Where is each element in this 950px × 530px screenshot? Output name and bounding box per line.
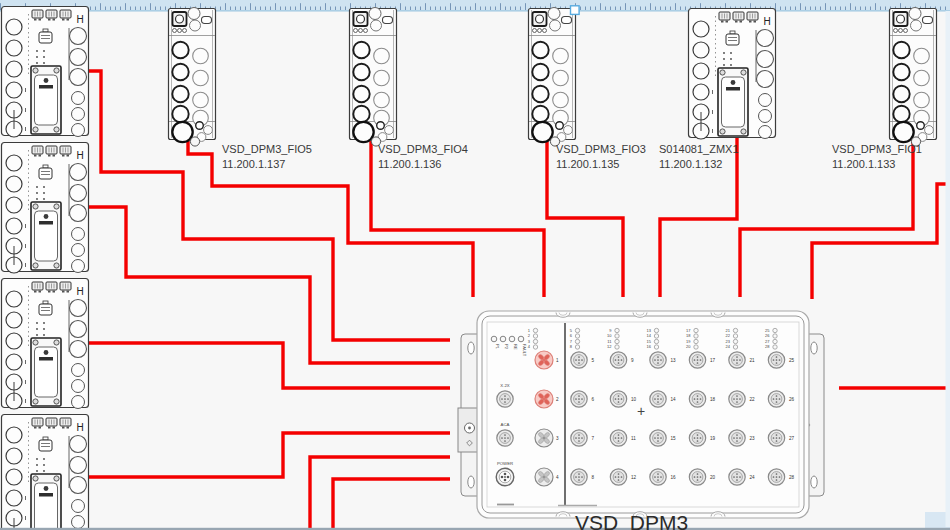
pin-dot [739, 359, 741, 361]
device-ip: 11.200.1.133 [832, 157, 922, 172]
led-dot [615, 328, 619, 332]
pin-dot [578, 476, 580, 478]
pin-dot [660, 359, 662, 361]
port-number: 19 [710, 436, 716, 441]
connector-label: X.2X [500, 383, 509, 388]
status-led-label: FAULT [522, 344, 527, 357]
pin-dot [654, 476, 656, 478]
main-port-circle [893, 122, 913, 142]
pin-dot [773, 476, 775, 478]
port-circle [204, 126, 213, 135]
module-fio4[interactable] [350, 8, 397, 147]
port-circle [6, 312, 22, 328]
connector-pin [749, 21, 752, 23]
status-led [491, 336, 497, 342]
dot [43, 328, 45, 330]
connector-pin [62, 291, 65, 293]
dot [43, 470, 45, 472]
port-number: 9 [631, 358, 634, 363]
port-circle [6, 448, 22, 464]
vertical-scrollbar[interactable] [946, 11, 950, 527]
port-circle [893, 64, 909, 80]
screw-icon [54, 68, 59, 73]
h-marker: H [76, 14, 83, 25]
pin-dot [776, 398, 778, 400]
pin-dot [501, 476, 504, 479]
pin-dot [578, 437, 580, 439]
screw-icon [33, 127, 38, 132]
port-circle [893, 42, 909, 58]
port-circle [693, 63, 709, 79]
pin-dot [618, 434, 620, 436]
connector-pin [34, 155, 37, 157]
led-number: 16 [647, 344, 652, 349]
led-dot [575, 339, 579, 343]
slot [562, 17, 572, 24]
port-number: 5 [592, 358, 595, 363]
pin-dot [504, 398, 506, 400]
led-number: 17 [686, 328, 691, 333]
device-name: VSD_DPM3_FIO3 [556, 142, 646, 157]
led-dot [654, 328, 658, 332]
connector-pin [67, 427, 70, 429]
pin-dot [501, 437, 503, 439]
pin-dot [736, 395, 738, 397]
port-circle [70, 477, 87, 494]
led-number: 26 [765, 333, 770, 338]
led-dot [533, 334, 537, 338]
pin-dot [618, 398, 620, 400]
device-name: S014081_ZMX1 [659, 142, 739, 157]
module-left-zmx-2[interactable]: H [2, 143, 89, 274]
led-dot [615, 339, 619, 343]
port-number: 23 [750, 436, 756, 441]
port-circle [172, 64, 188, 80]
pin-dot [657, 395, 659, 397]
port-circle [893, 86, 909, 102]
port-circle [377, 122, 385, 130]
pin-dot [615, 476, 617, 478]
port-circle [909, 8, 921, 20]
port-circle [556, 122, 564, 130]
module-zmx1[interactable]: H [689, 9, 776, 140]
pin-dot [618, 437, 620, 439]
brand-logo-icon [44, 214, 49, 219]
dot [43, 198, 45, 200]
pin-dot [504, 476, 506, 478]
pin-dot [657, 479, 659, 481]
port-number: 21 [750, 358, 756, 363]
screw-icon [33, 204, 38, 209]
port-circle [353, 86, 369, 102]
status-led-label: P2 [504, 344, 509, 350]
main-port-circle [532, 122, 552, 142]
port-circle [374, 48, 390, 64]
led-number: 21 [726, 328, 731, 333]
led-dot [694, 334, 698, 338]
port-circle [70, 69, 87, 86]
port-circle [532, 106, 548, 122]
connector-pin [53, 155, 56, 157]
pin-dot [739, 398, 741, 400]
port-circle [72, 380, 85, 393]
led-dot [615, 345, 619, 349]
port-number: 13 [671, 358, 677, 363]
module-fio3[interactable] [529, 8, 576, 147]
device-icon [726, 34, 739, 45]
pin-dot [543, 398, 545, 400]
port-circle [759, 126, 772, 139]
connection-offscreen-bottom-1[interactable] [310, 457, 450, 530]
module-fio1[interactable] [890, 8, 937, 147]
pin-dot [578, 398, 580, 400]
device-label-zmx1[interactable]: S014081_ZMX1 11.200.1.132 [659, 142, 739, 171]
port-circle [72, 244, 85, 257]
connector-pin [34, 19, 37, 21]
connector-pin [754, 21, 757, 23]
port-circle [6, 19, 22, 35]
dot [43, 56, 45, 58]
port-circle [6, 82, 22, 98]
pin-dot [615, 437, 617, 439]
port-circle [564, 126, 573, 135]
pin-dot [657, 356, 659, 358]
pin-dot [736, 437, 738, 439]
pin-dot [773, 359, 775, 361]
selection-handle[interactable] [571, 6, 580, 15]
port-circle [914, 48, 930, 64]
port-circle [190, 20, 201, 31]
led-dot [773, 328, 777, 332]
dot [43, 192, 45, 194]
pin-dot [581, 359, 583, 361]
bracket-hole [468, 342, 474, 354]
port-number: 7 [592, 436, 595, 441]
pin-dot [779, 398, 781, 400]
pin-dot [657, 398, 659, 400]
port-circle [6, 333, 22, 349]
led-number: 22 [726, 333, 731, 338]
pin-dot [618, 362, 620, 364]
pin-dot [773, 398, 775, 400]
pin-dot [621, 359, 623, 361]
pin-dot [733, 398, 735, 400]
status-led-label: P1 [495, 344, 500, 350]
port-circle [172, 86, 188, 102]
port-circle [911, 20, 922, 31]
led-dot [694, 328, 698, 332]
dot [36, 458, 38, 460]
dot [36, 198, 38, 200]
module-left-zmx-4[interactable]: H [2, 415, 89, 530]
device-label-fio3[interactable]: VSD_DPM3_FIO3 11.200.1.135 [556, 142, 646, 171]
screw-icon [54, 127, 59, 132]
port-circle [532, 86, 548, 102]
pin-dot [733, 359, 735, 361]
device-ip: 11.200.1.132 [659, 157, 739, 172]
connection-offscreen-bottom-2[interactable] [333, 479, 450, 530]
led-dot [543, 29, 547, 33]
device-label-fio1[interactable]: VSD_DPM3_FIO1 11.200.1.133 [832, 142, 922, 171]
port-circle [550, 20, 561, 31]
port-circle [925, 126, 934, 135]
port-circle [6, 155, 22, 171]
port-circle [70, 457, 87, 474]
bracket-hole [811, 342, 817, 354]
pin-dot [657, 473, 659, 475]
dot [36, 50, 38, 52]
device-name: VSD_DPM3_FIO4 [378, 142, 468, 157]
screw-icon [720, 129, 725, 134]
pin-dot [697, 401, 699, 403]
port-circle [6, 469, 22, 485]
screw-icon [468, 427, 471, 430]
pin-dot [578, 440, 580, 442]
connector-pin [62, 155, 65, 157]
port-circle [72, 124, 85, 137]
connector-pin [48, 427, 51, 429]
pin-dot [697, 437, 699, 439]
pin-dot [657, 440, 659, 442]
port-circle [72, 364, 85, 377]
led-dot [733, 339, 737, 343]
led-dot [773, 339, 777, 343]
pin-dot [736, 476, 738, 478]
port-number: 24 [750, 475, 756, 480]
led-dot [654, 339, 658, 343]
port-number: 11 [631, 436, 636, 441]
connection-offscreen-right-1[interactable] [812, 184, 950, 299]
led-dot [354, 29, 358, 33]
led-number: 24 [726, 344, 731, 349]
dot [43, 62, 45, 64]
port-circle [893, 106, 909, 122]
pin-dot [657, 434, 659, 436]
port-circle [914, 70, 930, 86]
led-dot [773, 334, 777, 338]
pin-dot [504, 395, 506, 397]
pin-dot [697, 359, 699, 361]
pin-dot [581, 398, 583, 400]
bracket-hole [468, 476, 474, 488]
brand-logo-icon [44, 350, 49, 355]
port-number: 8 [592, 475, 595, 480]
led-number: 18 [686, 333, 691, 338]
pin-dot [660, 398, 662, 400]
pin-dot [694, 437, 696, 439]
pin-dot [736, 473, 738, 475]
pin-dot [621, 437, 623, 439]
pin-dot [621, 476, 623, 478]
pin-dot [504, 479, 507, 482]
pin-dot [697, 473, 699, 475]
port-number: 14 [671, 397, 677, 402]
ruler-band [0, 0, 950, 11]
port-circle [193, 92, 209, 108]
port-circle [353, 42, 369, 58]
port-circle [757, 51, 774, 68]
device-icon [39, 32, 52, 43]
port-number: 6 [592, 397, 595, 402]
pin-dot [543, 359, 545, 361]
pin-dot [736, 440, 738, 442]
pin-dot [779, 359, 781, 361]
pin-dot [776, 362, 778, 364]
port-circle [532, 64, 548, 80]
module-left-zmx-3[interactable]: H [2, 279, 89, 410]
connector-pin [62, 427, 65, 429]
connector-pin [34, 427, 37, 429]
pin-dot [654, 398, 656, 400]
port-circle [6, 197, 22, 213]
led-dot [733, 334, 737, 338]
pin-dot [504, 440, 506, 442]
screw-icon [741, 70, 746, 75]
pin-dot [736, 401, 738, 403]
led-dot [173, 29, 177, 33]
pin-dot [733, 437, 735, 439]
screw-icon [33, 263, 38, 268]
led-dot [183, 29, 187, 33]
dot [36, 192, 38, 194]
port-circle [693, 21, 709, 37]
port-number: 20 [710, 475, 716, 480]
device-label-fio5[interactable]: VSD_DPM3_FIO5 11.200.1.137 [222, 142, 312, 171]
brand-logo-icon [731, 80, 736, 85]
led-dot [894, 29, 898, 33]
led-number: 23 [726, 339, 731, 344]
dot [43, 334, 45, 336]
port-circle [548, 8, 560, 20]
status-led-label: RE [513, 344, 518, 350]
port-number: 10 [631, 397, 637, 402]
hub-device-label[interactable]: VSD_DPM3 [575, 511, 688, 530]
screw-icon [54, 399, 59, 404]
pin-dot [700, 359, 702, 361]
pin-dot [618, 359, 620, 361]
main-port-circle [172, 122, 192, 142]
port-number: 4 [556, 475, 559, 480]
port-circle [374, 70, 390, 86]
port-number: 18 [710, 397, 716, 402]
pin-dot [779, 437, 781, 439]
pin-dot [697, 362, 699, 364]
port-circle [353, 64, 369, 80]
connector-pin [53, 291, 56, 293]
dot [36, 186, 38, 188]
pin-dot [694, 359, 696, 361]
connector-pin [726, 21, 729, 23]
pin-dot [618, 401, 620, 403]
block-label-bar [39, 357, 53, 361]
port-circle [917, 122, 925, 130]
dot [36, 322, 38, 324]
pin-dot [776, 476, 778, 478]
device-label-fio4[interactable]: VSD_DPM3_FIO4 11.200.1.136 [378, 142, 468, 171]
led-dot [733, 345, 737, 349]
bracket-hole [811, 476, 817, 488]
pin-dot [733, 476, 735, 478]
port-circle [6, 40, 22, 56]
connector-pin [48, 291, 51, 293]
led-dot [533, 345, 537, 349]
connector-pin [48, 19, 51, 21]
dot [730, 58, 732, 60]
pin-dot [700, 437, 702, 439]
led-number: 15 [647, 339, 652, 344]
connector-pin [67, 291, 70, 293]
dot [43, 186, 45, 188]
connector-pin [721, 21, 724, 23]
connection-left-zmx-4[interactable] [88, 433, 450, 477]
pin-dot [697, 395, 699, 397]
center-cross-mark: + [637, 403, 645, 419]
pin-dot [575, 359, 577, 361]
pin-dot [543, 437, 545, 439]
port-circle [72, 500, 85, 513]
pin-dot [776, 395, 778, 397]
pin-dot [694, 398, 696, 400]
port-number: 25 [789, 358, 795, 363]
pin-dot [615, 398, 617, 400]
connector-pin [39, 291, 42, 293]
module-left-zmx-1[interactable]: H [2, 7, 89, 138]
pin-dot [657, 437, 659, 439]
port-circle [6, 354, 22, 370]
pin-dot [504, 437, 506, 439]
block-label-bar [39, 493, 53, 497]
pin-dot [575, 476, 577, 478]
device-icon [39, 304, 52, 315]
connector-pin [53, 19, 56, 21]
dot [723, 52, 725, 54]
port-number: 26 [789, 397, 795, 402]
connector-pin [735, 21, 738, 23]
module-fio5[interactable] [169, 8, 216, 147]
led-dot [575, 328, 579, 332]
port-number: 2 [556, 397, 559, 402]
led-dot [359, 29, 363, 33]
device-name: VSD_DPM3_FIO5 [222, 142, 312, 157]
page-boundary-line [0, 10, 950, 11]
module-hub[interactable]: P1P2REFAULT12345678910111213141516171819… [458, 311, 824, 518]
pin-dot [776, 356, 778, 358]
connector-pin [740, 21, 743, 23]
port-circle [172, 42, 188, 58]
device-ip: 11.200.1.135 [556, 157, 646, 172]
port-circle [757, 71, 774, 88]
pin-dot [660, 437, 662, 439]
pin-dot [657, 401, 659, 403]
led-number: 20 [686, 344, 691, 349]
pin-dot [779, 476, 781, 478]
port-circle [353, 106, 369, 122]
pin-dot [504, 401, 506, 403]
port-circle [72, 92, 85, 105]
port-circle [70, 321, 87, 338]
led-dot [904, 29, 908, 33]
led-dot [538, 29, 542, 33]
port-circle [172, 106, 188, 122]
diagram-canvas: HHHHHP1P2REFAULT123456789101112131415161… [0, 0, 950, 530]
port-number: 12 [631, 475, 637, 480]
port-circle [6, 176, 22, 192]
dot [36, 56, 38, 58]
connection-left-zmx-3[interactable] [88, 343, 450, 388]
pin-dot [736, 434, 738, 436]
device-name: VSD_DPM3_FIO1 [832, 142, 922, 157]
pin-dot [581, 437, 583, 439]
